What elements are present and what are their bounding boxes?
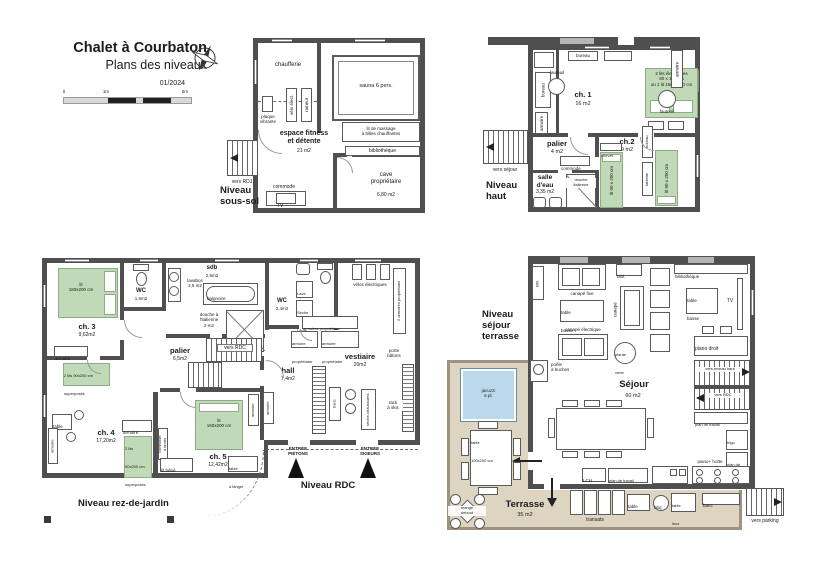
terrace-table-label: table 100x200 cm [471,440,493,463]
sofa-cushion [582,268,600,286]
burner [714,469,721,476]
plant-label: plante verte [615,352,626,375]
sun-loungers-label: transats [578,517,612,523]
balcony-post-gap [688,257,714,263]
chair [606,451,622,458]
bench-terrace-label: banc [703,503,713,508]
chair [584,451,600,458]
chair [478,421,498,429]
sink-basin [670,469,677,476]
upright-piano-label: piano droit [695,346,718,352]
chair [513,462,521,480]
burner [714,477,721,484]
stairs-arrow [742,368,750,376]
level-label-sejour-terrasse: Niveau séjour terrasse [482,310,532,343]
worktop-2-label: plan de travail [609,478,634,483]
stairs-arrow [774,498,782,506]
worktop-2: plan de travail [608,468,648,483]
floor-plan-sheet: Chalet à Courbaton Plans des niveaux 01/… [0,0,813,575]
stool [450,494,461,505]
bbq-label: bbq [654,505,662,510]
bookcase-left-label: bibl. [533,267,543,299]
bookcase-top-label: bibl. [617,274,625,279]
upright-piano: piano droit [694,336,748,356]
shelf-unit [650,268,670,286]
room-label-terrasse: Terrasse [498,500,552,511]
chair [513,438,521,456]
coffee-table-2: table basse [686,288,718,314]
tv [737,278,743,330]
sofa-fixed-label: canapé fixe [556,291,608,296]
chair [461,462,469,480]
worktop: plan de travail [694,412,748,424]
standing-table-label: mange debout [448,506,486,516]
sun-lounger [598,490,611,515]
sun-lounger [612,490,625,515]
bench-terrace: banc [702,493,740,505]
bookcase-left: bibl. [532,266,544,300]
jacuzzi-label: jacuzzi 6 pl. [460,388,517,399]
exit-arrow-stem [551,478,553,498]
stairs-parking-label: vers parking [742,518,788,524]
sofa-cushion [562,268,580,286]
room-area-terrasse: 35 m2 [510,512,540,519]
sun-lounger [570,490,583,515]
stairs-arrow [696,394,704,402]
dishwasher: LCH [582,468,606,482]
window [751,290,754,315]
shelf-unit [650,290,670,308]
plant: plante verte [614,342,636,364]
stairs-label: vers RDC [706,393,740,398]
stool [474,518,485,529]
coffee-table-2-label: table basse [687,298,699,321]
sofa-electric-label: canapé électrique [556,327,610,332]
balcony-post-gap [560,257,588,263]
sink-basin [679,469,686,476]
burner [696,477,703,484]
sofa-vertical-label: canapé [610,290,620,330]
chair [562,451,578,458]
burner [696,469,703,476]
chair [562,400,578,407]
range-hood-label: piano+ hotte [686,459,734,464]
sun-lounger [584,490,597,515]
tv-label: TV [724,298,736,304]
terrace-table: table 100x200 cm [470,430,512,486]
chair [548,418,555,438]
chair [647,418,654,438]
dining-table [556,408,646,450]
shelf-unit [650,334,670,352]
stairs-label: vers niveau haut [698,367,742,372]
sofa-cushion [624,290,640,326]
bookshelf-wall: bibliothèque [674,264,748,274]
wood-stove-label: poêle à buches [551,362,577,373]
chair [606,400,622,407]
room-area-sejour: 60 m2 [618,393,648,400]
terrace-rim [447,360,450,530]
piano-stool [720,326,732,334]
exit-arrow-stem [520,460,542,462]
plan-sejour-terrasse: jacuzzi 6 pl. Niveau séjour terrasse bib… [0,0,813,575]
bookshelf-wall-label: bibliothèque [675,274,699,279]
sofa-cushion [584,338,604,356]
terrace-rim [447,527,742,530]
burner [732,469,739,476]
chair [461,438,469,456]
stool [474,494,485,505]
terrace-rim [447,360,528,363]
dishwasher-label: LCH [583,478,592,483]
wall [560,484,755,489]
burner [732,477,739,484]
worktop-label: plan de travail [695,422,720,427]
piano-stool [702,326,714,334]
terrace-side-table-label: table [628,504,638,509]
stool [450,518,461,529]
coffee-table: table basse [560,300,604,322]
terrace-side-table: table [627,494,650,511]
fridge: frigo [726,430,748,450]
bookcase-top: bibl. [616,264,642,276]
fridge-label: frigo [727,440,735,445]
chair [584,400,600,407]
balcony-post-gap [622,257,650,263]
inox-table: table inox [671,493,696,512]
sofa-cushion [562,338,582,356]
shelf-unit [650,312,670,330]
room-label-sejour: Séjour [612,380,656,391]
wood-stove-flue [533,364,544,375]
wall [528,484,544,489]
bbq: bbq [653,495,669,511]
